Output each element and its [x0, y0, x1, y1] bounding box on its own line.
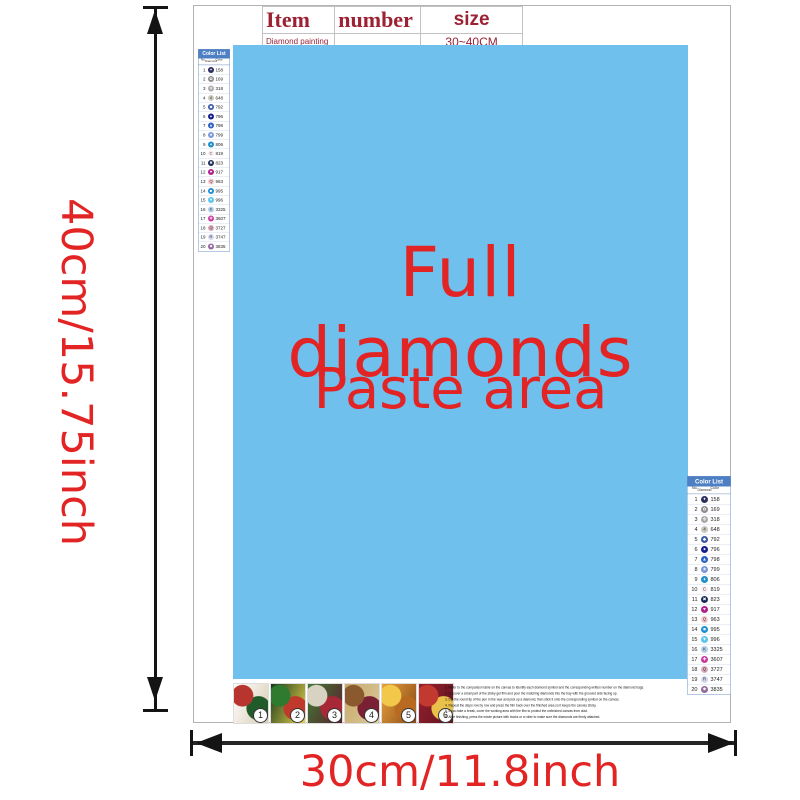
color-row-code: 3607 [711, 656, 730, 662]
diamond-color-swatch-icon: K [701, 646, 708, 653]
arrow-head-up-icon [147, 10, 163, 34]
diamond-color-swatch-icon: Q [208, 225, 214, 231]
color-row-code: 799 [216, 132, 229, 137]
paste-area-region: Full diamonds Paste area [233, 45, 688, 679]
color-row-number: 5 [688, 536, 699, 542]
color-row: 19R3747 [688, 674, 731, 684]
diamond-color-swatch-icon: ✦ [701, 496, 708, 503]
color-row-code: 3747 [216, 235, 229, 240]
color-row-code: 799 [711, 566, 730, 572]
color-row: 11✖823 [199, 158, 230, 167]
color-row-symbol-cell: ★ [699, 566, 711, 573]
color-list-title: Color List [199, 50, 230, 59]
color-row: 17✚3607 [688, 654, 731, 664]
column-header-color: Color [216, 59, 229, 65]
color-row: 17✚3607 [199, 214, 230, 223]
color-row: 6●796 [688, 544, 731, 554]
color-row-symbol-cell: ▼ [207, 197, 216, 203]
color-row: 3✜318 [688, 514, 731, 524]
color-row: 5◆792 [199, 102, 230, 111]
color-row-code: 169 [216, 77, 229, 82]
color-row-number: 9 [199, 142, 207, 147]
color-row: 9♦806 [688, 574, 731, 584]
color-row-code: 996 [216, 198, 229, 203]
color-row-number: 20 [199, 244, 207, 249]
color-row-code: 963 [711, 616, 730, 622]
color-row-symbol-cell: ✜ [699, 516, 711, 523]
color-row-number: 7 [199, 123, 207, 128]
item-info-table: Item number size Diamond painting 30~40C… [262, 6, 523, 50]
diamond-color-swatch-icon: ▼ [701, 636, 708, 643]
color-row-symbol-cell: ◆ [699, 536, 711, 543]
color-row: 18Q3727 [199, 223, 230, 232]
color-row-code: 3325 [711, 646, 730, 652]
thumbnail-number-badge: 3 [327, 708, 342, 723]
color-row-code: 169 [711, 506, 730, 512]
color-row-symbol-cell: ✿ [699, 506, 711, 513]
color-row-code: 796 [216, 114, 229, 119]
diamond-color-swatch-icon: 4 [701, 526, 708, 533]
color-row-symbol-cell: Q [699, 616, 711, 623]
diamond-color-swatch-icon: ♦ [701, 576, 708, 583]
diamond-color-swatch-icon: ✖ [701, 596, 708, 603]
color-row-symbol-cell: R [207, 234, 216, 240]
diamond-color-swatch-icon: R [701, 676, 708, 683]
arrow-head-left-icon [196, 733, 222, 753]
diamond-color-swatch-icon: ✹ [701, 686, 708, 693]
color-row-symbol-cell: ✚ [207, 216, 216, 222]
color-row-number: 14 [688, 626, 699, 632]
diamond-color-swatch-icon: C [208, 151, 214, 157]
thumbnail-number-badge: 2 [290, 708, 305, 723]
color-row-symbol-cell: ♥ [699, 606, 711, 613]
color-row-number: 12 [688, 606, 699, 612]
color-row-symbol-cell: ✦ [207, 67, 216, 73]
color-row-code: 792 [711, 536, 730, 542]
color-row-number: 3 [688, 516, 699, 522]
diamond-color-swatch-icon: C [701, 586, 708, 593]
color-row-number: 4 [199, 95, 207, 100]
color-row-number: 8 [688, 566, 699, 572]
arrow-head-down-icon [147, 677, 163, 701]
diamond-color-swatch-icon: K [208, 206, 214, 212]
color-row: 2✿169 [688, 504, 731, 514]
color-row: 20✹3835 [199, 242, 230, 251]
artwork-thumbnail: 4 [344, 683, 380, 724]
horizontal-arrow-line [193, 741, 735, 745]
color-row-number: 1 [199, 67, 207, 72]
color-row-number: 11 [199, 160, 207, 165]
diamond-color-swatch-icon: ★ [701, 566, 708, 573]
color-row-symbol-cell: 4 [699, 526, 711, 533]
color-row-symbol-cell: 4 [207, 95, 216, 101]
color-row-code: 819 [711, 586, 730, 592]
color-row-number: 11 [688, 596, 699, 602]
color-row: 2✿169 [199, 74, 230, 83]
thumbnail-number-badge: 4 [364, 708, 379, 723]
color-row-code: 318 [216, 86, 229, 91]
color-row-number: 15 [199, 198, 207, 203]
color-row-number: 9 [688, 576, 699, 582]
color-row-symbol-cell: ✹ [207, 244, 216, 250]
color-row-number: 16 [688, 646, 699, 652]
color-row-code: 963 [216, 179, 229, 184]
size-header: size [421, 7, 523, 34]
horizontal-arrow-right-cap [734, 730, 737, 756]
color-row: 9♦806 [199, 139, 230, 148]
color-row-symbol-cell: ✖ [207, 160, 216, 166]
artwork-thumbnail: 2 [270, 683, 306, 724]
color-row-number: 12 [199, 170, 207, 175]
color-row-symbol-cell: ▲ [699, 556, 711, 563]
color-row-number: 14 [199, 188, 207, 193]
color-row-symbol-cell: ■ [207, 188, 216, 194]
color-row-code: 3835 [711, 686, 730, 692]
color-row: 44648 [688, 524, 731, 534]
color-row-number: 8 [199, 132, 207, 137]
vertical-arrow-bottom-cap [143, 709, 168, 712]
color-row: 7▲798 [688, 554, 731, 564]
color-row-symbol-cell: C [699, 586, 711, 593]
color-row-symbol-cell: ✦ [699, 496, 711, 503]
color-row-number: 13 [199, 179, 207, 184]
number-header: number [335, 7, 421, 34]
color-row-number: 17 [688, 656, 699, 662]
color-row-number: 4 [688, 526, 699, 532]
color-row-code: 3325 [216, 207, 229, 212]
diamond-color-swatch-icon: ★ [208, 132, 214, 138]
instructions-text-block: 1. Refer to the comparison table on the … [445, 685, 681, 721]
color-row-number: 2 [688, 506, 699, 512]
color-row: 8★799 [688, 564, 731, 574]
color-row-code: 806 [216, 142, 229, 147]
color-row: 13Q963 [688, 614, 731, 624]
color-row: 13Q963 [199, 177, 230, 186]
diamond-color-swatch-icon: ◆ [208, 104, 214, 110]
artwork-thumbnail: 1 [233, 683, 269, 724]
color-row-symbol-cell: R [699, 676, 711, 683]
diamond-color-swatch-icon: ■ [701, 626, 708, 633]
paste-area-text: Paste area [233, 357, 688, 422]
diamond-color-swatch-icon: ● [701, 546, 708, 553]
color-row-code: 158 [711, 496, 730, 502]
thumbnail-number-badge: 1 [253, 708, 268, 723]
color-row: 12♥917 [688, 604, 731, 614]
color-row-symbol-cell: ♦ [207, 141, 216, 147]
color-row: 10C819 [688, 584, 731, 594]
color-row-code: 3835 [216, 244, 229, 249]
color-row-code: 996 [711, 636, 730, 642]
color-row-symbol-cell: ● [207, 113, 216, 119]
color-row-code: 995 [711, 626, 730, 632]
diamond-color-swatch-icon: ● [208, 113, 214, 119]
color-row-number: 6 [688, 546, 699, 552]
color-row-number: 17 [199, 216, 207, 221]
color-row: 16K3325 [199, 204, 230, 213]
diamond-color-swatch-icon: ♥ [701, 606, 708, 613]
color-row-symbol-cell: ✜ [207, 85, 216, 91]
diamond-color-swatch-icon: 4 [208, 95, 214, 101]
width-dimension-label: 30cm/11.8inch [300, 747, 621, 797]
color-row: 11✖823 [688, 594, 731, 604]
diamond-color-swatch-icon: ✚ [208, 216, 214, 222]
diamond-color-swatch-icon: ✖ [208, 160, 214, 166]
column-header-diamond: Diamond [699, 487, 711, 494]
color-row-number: 3 [199, 86, 207, 91]
color-row-code: 798 [216, 123, 229, 128]
color-row-number: 6 [199, 114, 207, 119]
diamond-color-swatch-icon: Q [701, 616, 708, 623]
color-row-symbol-cell: ♥ [207, 169, 216, 175]
color-row-code: 917 [216, 170, 229, 175]
diamond-color-swatch-icon: R [208, 234, 214, 240]
color-row: 14■995 [199, 186, 230, 195]
diamond-color-swatch-icon: ✿ [208, 76, 214, 82]
color-row-number: 2 [199, 77, 207, 82]
color-row-number: 20 [688, 686, 699, 692]
color-row-symbol-cell: ▼ [699, 636, 711, 643]
color-row: 18Q3727 [688, 664, 731, 674]
artwork-thumbnail-strip: 123456 [233, 683, 454, 722]
color-row-symbol-cell: K [207, 206, 216, 212]
instruction-line: 6. After finishing, press the whole pict… [445, 715, 681, 721]
color-row: 44648 [199, 93, 230, 102]
color-row-number: 10 [199, 151, 207, 156]
color-row-number: 18 [199, 225, 207, 230]
color-row-symbol-cell: ✿ [207, 76, 216, 82]
color-list-left: Color ListNo.DiamondColor1✦1582✿1693✜318… [198, 49, 230, 251]
diamond-color-swatch-icon: ✿ [701, 506, 708, 513]
color-row-symbol-cell: Q [207, 225, 216, 231]
color-row-code: 823 [711, 596, 730, 602]
diamond-color-swatch-icon: ■ [208, 188, 214, 194]
artwork-thumbnail: 3 [307, 683, 343, 724]
color-row-symbol-cell: ★ [207, 132, 216, 138]
canvas-sheet: Item number size Diamond painting 30~40C… [193, 5, 731, 723]
color-row-number: 10 [688, 586, 699, 592]
color-row-symbol-cell: ◆ [207, 104, 216, 110]
item-header: Item [263, 7, 335, 34]
artwork-thumbnail: 5 [381, 683, 417, 724]
color-row-number: 1 [688, 496, 699, 502]
color-row: 10C819 [199, 149, 230, 158]
color-list-right: Color ListNo.DiamondColor1✦1582✿1693✜318… [687, 476, 731, 695]
color-row-code: 3747 [711, 676, 730, 682]
color-row-code: 798 [711, 556, 730, 562]
color-row-code: 3727 [216, 225, 229, 230]
color-row: 1✦158 [688, 494, 731, 504]
color-row-symbol-cell: ● [699, 546, 711, 553]
arrow-head-right-icon [708, 733, 734, 753]
color-row-symbol-cell: C [207, 151, 216, 157]
color-row-code: 819 [216, 151, 229, 156]
color-row-number: 15 [688, 636, 699, 642]
height-dimension-label: 40cm/15.75inch [51, 198, 101, 546]
color-row-code: 158 [216, 67, 229, 72]
color-row-code: 806 [711, 576, 730, 582]
thumbnail-number-badge: 5 [401, 708, 416, 723]
color-row: 1✦158 [199, 65, 230, 74]
color-list-column-headers: No.DiamondColor [199, 59, 230, 66]
color-row: 3✜318 [199, 84, 230, 93]
diamond-color-swatch-icon: ✜ [701, 516, 708, 523]
color-row-symbol-cell: Q [207, 178, 216, 184]
diamond-color-swatch-icon: ✜ [208, 85, 214, 91]
color-row-number: 7 [688, 556, 699, 562]
diamond-color-swatch-icon: ✹ [208, 244, 214, 250]
color-list-column-headers: No.DiamondColor [688, 487, 731, 495]
color-row: 5◆792 [688, 534, 731, 544]
color-row-code: 648 [216, 95, 229, 100]
color-row-code: 995 [216, 188, 229, 193]
diamond-color-swatch-icon: ▼ [208, 197, 214, 203]
color-row-code: 792 [216, 105, 229, 110]
color-row-code: 3607 [216, 216, 229, 221]
column-header-diamond: Diamond [207, 59, 216, 65]
diamond-color-swatch-icon: ▲ [208, 123, 214, 129]
diamond-color-swatch-icon: Q [208, 178, 214, 184]
color-row: 8★799 [199, 130, 230, 139]
diamond-color-swatch-icon: ◆ [701, 536, 708, 543]
vertical-arrow-line [154, 8, 157, 711]
color-row: 16K3325 [688, 644, 731, 654]
color-row-number: 5 [199, 105, 207, 110]
color-row-symbol-cell: ■ [699, 626, 711, 633]
column-header-color: Color [711, 487, 730, 494]
color-row: 12♥917 [199, 167, 230, 176]
color-row-symbol-cell: ✖ [699, 596, 711, 603]
diamond-color-swatch-icon: ♥ [208, 169, 214, 175]
diamond-color-swatch-icon: ▲ [701, 556, 708, 563]
color-row: 7▲798 [199, 121, 230, 130]
color-row-number: 18 [688, 666, 699, 672]
color-row-symbol-cell: ▲ [207, 123, 216, 129]
color-row-symbol-cell: ✚ [699, 656, 711, 663]
color-row-number: 19 [688, 676, 699, 682]
diamond-color-swatch-icon: ♦ [208, 141, 214, 147]
diamond-color-swatch-icon: ✚ [701, 656, 708, 663]
color-row-symbol-cell: ♦ [699, 576, 711, 583]
color-row-number: 13 [688, 616, 699, 622]
color-row-symbol-cell: Q [699, 666, 711, 673]
color-row-code: 648 [711, 526, 730, 532]
color-row-code: 917 [711, 606, 730, 612]
color-row: 19R3747 [199, 232, 230, 241]
color-row-symbol-cell: K [699, 646, 711, 653]
diamond-color-swatch-icon: ✦ [208, 67, 214, 73]
color-row: 20✹3835 [688, 684, 731, 694]
color-row: 15▼996 [688, 634, 731, 644]
diamond-color-swatch-icon: Q [701, 666, 708, 673]
color-row-number: 16 [199, 207, 207, 212]
color-list-title: Color List [688, 477, 731, 487]
color-row: 15▼996 [199, 195, 230, 204]
color-row-code: 796 [711, 546, 730, 552]
color-row-symbol-cell: ✹ [699, 686, 711, 693]
color-row-code: 823 [216, 160, 229, 165]
color-row-code: 318 [711, 516, 730, 522]
color-row-number: 19 [199, 235, 207, 240]
color-row-code: 3727 [711, 666, 730, 672]
color-row: 14■995 [688, 624, 731, 634]
color-row: 6●796 [199, 111, 230, 120]
